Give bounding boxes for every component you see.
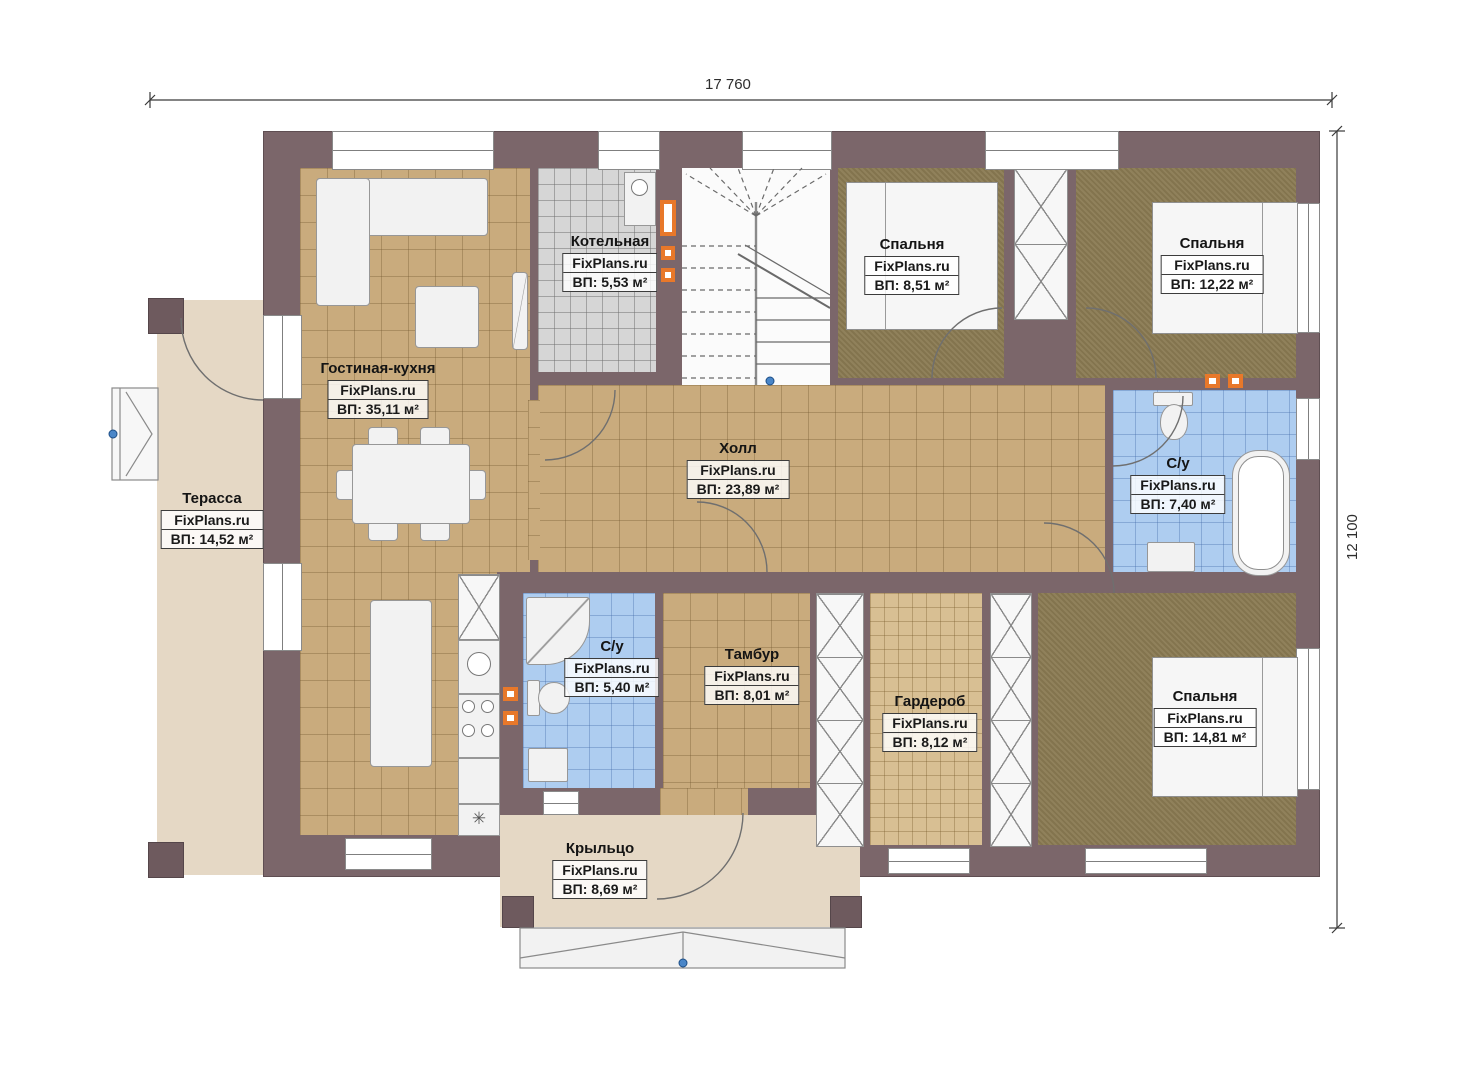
sink-bowl [467,652,491,676]
brand-watermark: FixPlans.ru [1155,709,1256,728]
burner [481,724,494,737]
room-name: Гардероб [882,693,977,710]
room-name: Котельная [562,233,657,250]
toilet-bowl [1160,404,1188,440]
shelf-unit [512,272,528,350]
dining-table [352,444,470,524]
room-area: ВП: 8,69 м² [553,880,646,898]
appliance-cell: ✳ [458,804,500,836]
window [742,131,832,170]
brand-watermark: FixPlans.ru [553,861,646,880]
brand-watermark: FixPlans.ru [328,381,428,400]
room-area: ВП: 23,89 м² [688,480,789,498]
room-area: ВП: 5,53 м² [563,273,656,291]
bathtub-inner [1238,456,1284,570]
brand-watermark: FixPlans.ru [1162,256,1263,275]
bathtub [1232,450,1290,576]
brand-watermark: FixPlans.ru [1131,476,1224,495]
room-area: ВП: 14,52 м² [162,530,263,548]
window [1296,398,1320,460]
stairwell-floor [682,168,830,385]
burner [481,700,494,713]
dimension-line-right [1329,126,1345,933]
dimension-right-label: 12 100 [1344,514,1361,560]
room-area: ВП: 14,81 м² [1155,728,1256,746]
washbasin [528,748,568,782]
coffee-table [415,286,479,348]
window [1296,203,1320,333]
room-name: С/у [1130,455,1225,472]
fridge [458,574,500,640]
vent-marker [661,246,675,260]
room-name: Спальня [1154,688,1257,705]
terrace-floor [157,300,263,875]
brand-watermark: FixPlans.ru [162,511,263,530]
hall-floor [538,385,1105,572]
porch-steps [520,928,845,968]
dimension-top-label: 17 760 [705,76,751,93]
wardrobe-cabinet-hatch [990,593,1032,847]
vent-marker [503,711,518,725]
room-label-bedroom-1: Спальня FixPlans.ru ВП: 8,51 м² [864,236,959,295]
room-label-living-kitchen: Гостиная-кухня FixPlans.ru ВП: 35,11 м² [321,360,436,419]
window [598,131,660,170]
chair [420,521,450,541]
vent-marker [660,200,676,236]
wardrobe-cabinet-hatch [816,593,864,847]
brand-watermark: FixPlans.ru [865,257,958,276]
window [332,131,494,170]
brand-watermark: FixPlans.ru [705,667,798,686]
room-name: Холл [687,440,790,457]
room-name: С/у [564,638,659,655]
dimension-line-top [145,92,1337,108]
kitchen-island [370,600,432,767]
brand-watermark: FixPlans.ru [563,254,656,273]
room-area: ВП: 35,11 м² [328,400,428,418]
room-name: Спальня [864,236,959,253]
floor-plan-canvas: ✳ [0,0,1474,1080]
room-name: Спальня [1161,235,1264,252]
room-name: Тамбур [704,646,799,663]
porch-post [830,896,862,928]
entrance-door-opening [660,788,748,815]
room-label-hall: Холл FixPlans.ru ВП: 23,89 м² [687,440,790,499]
room-label-bedroom-3: Спальня FixPlans.ru ВП: 14,81 м² [1154,688,1257,747]
room-area: ВП: 8,01 м² [705,686,798,704]
brand-watermark: FixPlans.ru [565,659,658,678]
room-label-bedroom-2: Спальня FixPlans.ru ВП: 12,22 м² [1161,235,1264,294]
room-area: ВП: 8,12 м² [883,733,976,751]
room-label-wardrobe: Гардероб FixPlans.ru ВП: 8,12 м² [882,693,977,752]
chair [368,521,398,541]
room-area: ВП: 8,51 м² [865,276,958,294]
vent-marker [661,268,675,282]
anchor-dot [109,430,117,438]
window [1085,848,1207,874]
vent-marker [503,687,518,701]
window [263,563,302,651]
room-label-bathroom-2: С/у FixPlans.ru ВП: 5,40 м² [564,638,659,697]
closet-niche-hatch [1014,168,1068,320]
vent-marker [1228,374,1243,388]
room-label-porch: Крыльцо FixPlans.ru ВП: 8,69 м² [552,840,647,899]
terrace-door-opening [263,315,302,399]
window [888,848,970,874]
room-name: Крыльцо [552,840,647,857]
window [1296,648,1320,790]
window [985,131,1119,170]
room-label-terrace: Терасса FixPlans.ru ВП: 14,52 м² [161,490,264,549]
room-area: ВП: 12,22 м² [1162,275,1263,293]
room-label-bathroom-1: С/у FixPlans.ru ВП: 7,40 м² [1130,455,1225,514]
sofa-chaise [316,178,370,306]
terrace-post [148,298,184,334]
anchor-dot [679,959,687,967]
room-label-boiler: Котельная FixPlans.ru ВП: 5,53 м² [562,233,657,292]
washbasin [1147,542,1195,572]
vent-marker [1205,374,1220,388]
room-label-vestibule: Тамбур FixPlans.ru ВП: 8,01 м² [704,646,799,705]
room-name: Гостиная-кухня [321,360,436,377]
burner [462,700,475,713]
window [543,791,579,815]
porch-post [502,896,534,928]
room-name: Терасса [161,490,264,507]
burner [462,724,475,737]
boiler-gauge [631,179,648,196]
terrace-post [148,842,184,878]
kitchen-counter [458,758,500,804]
room-area: ВП: 5,40 м² [565,678,658,696]
window [345,838,432,870]
terrace-step [112,388,158,480]
room-area: ВП: 7,40 м² [1131,495,1224,513]
brand-watermark: FixPlans.ru [688,461,789,480]
brand-watermark: FixPlans.ru [883,714,976,733]
bed-head-line [1262,658,1263,796]
living-hall-opening [528,400,540,560]
